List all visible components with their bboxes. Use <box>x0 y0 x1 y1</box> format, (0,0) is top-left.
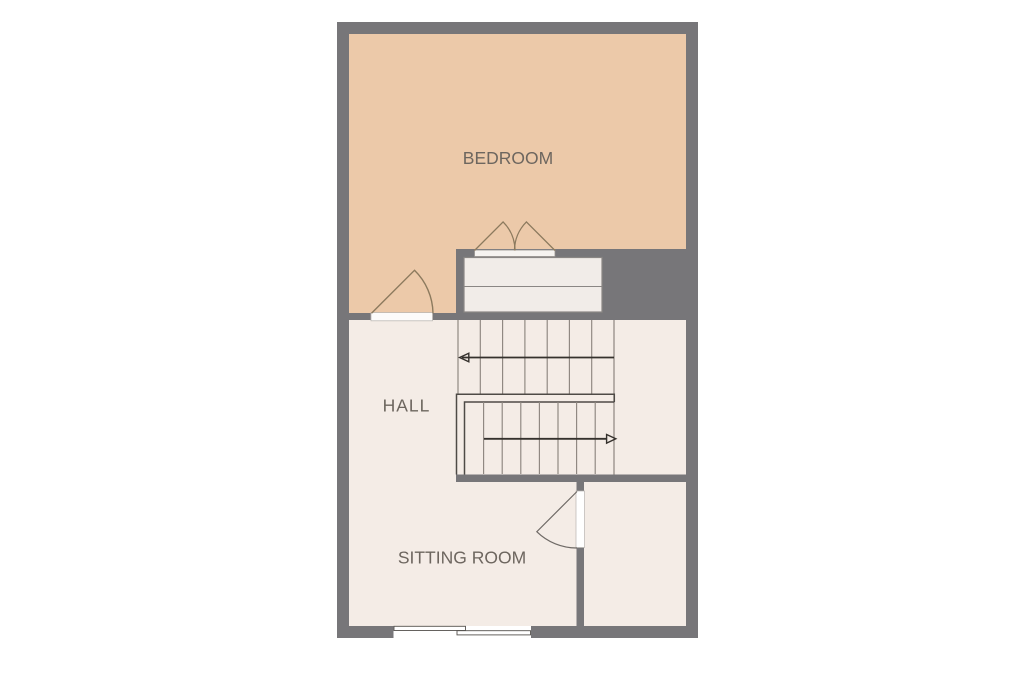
svg-text:SITTING ROOM: SITTING ROOM <box>398 548 526 568</box>
svg-text:BEDROOM: BEDROOM <box>463 148 553 168</box>
svg-text:HALL: HALL <box>383 396 431 416</box>
